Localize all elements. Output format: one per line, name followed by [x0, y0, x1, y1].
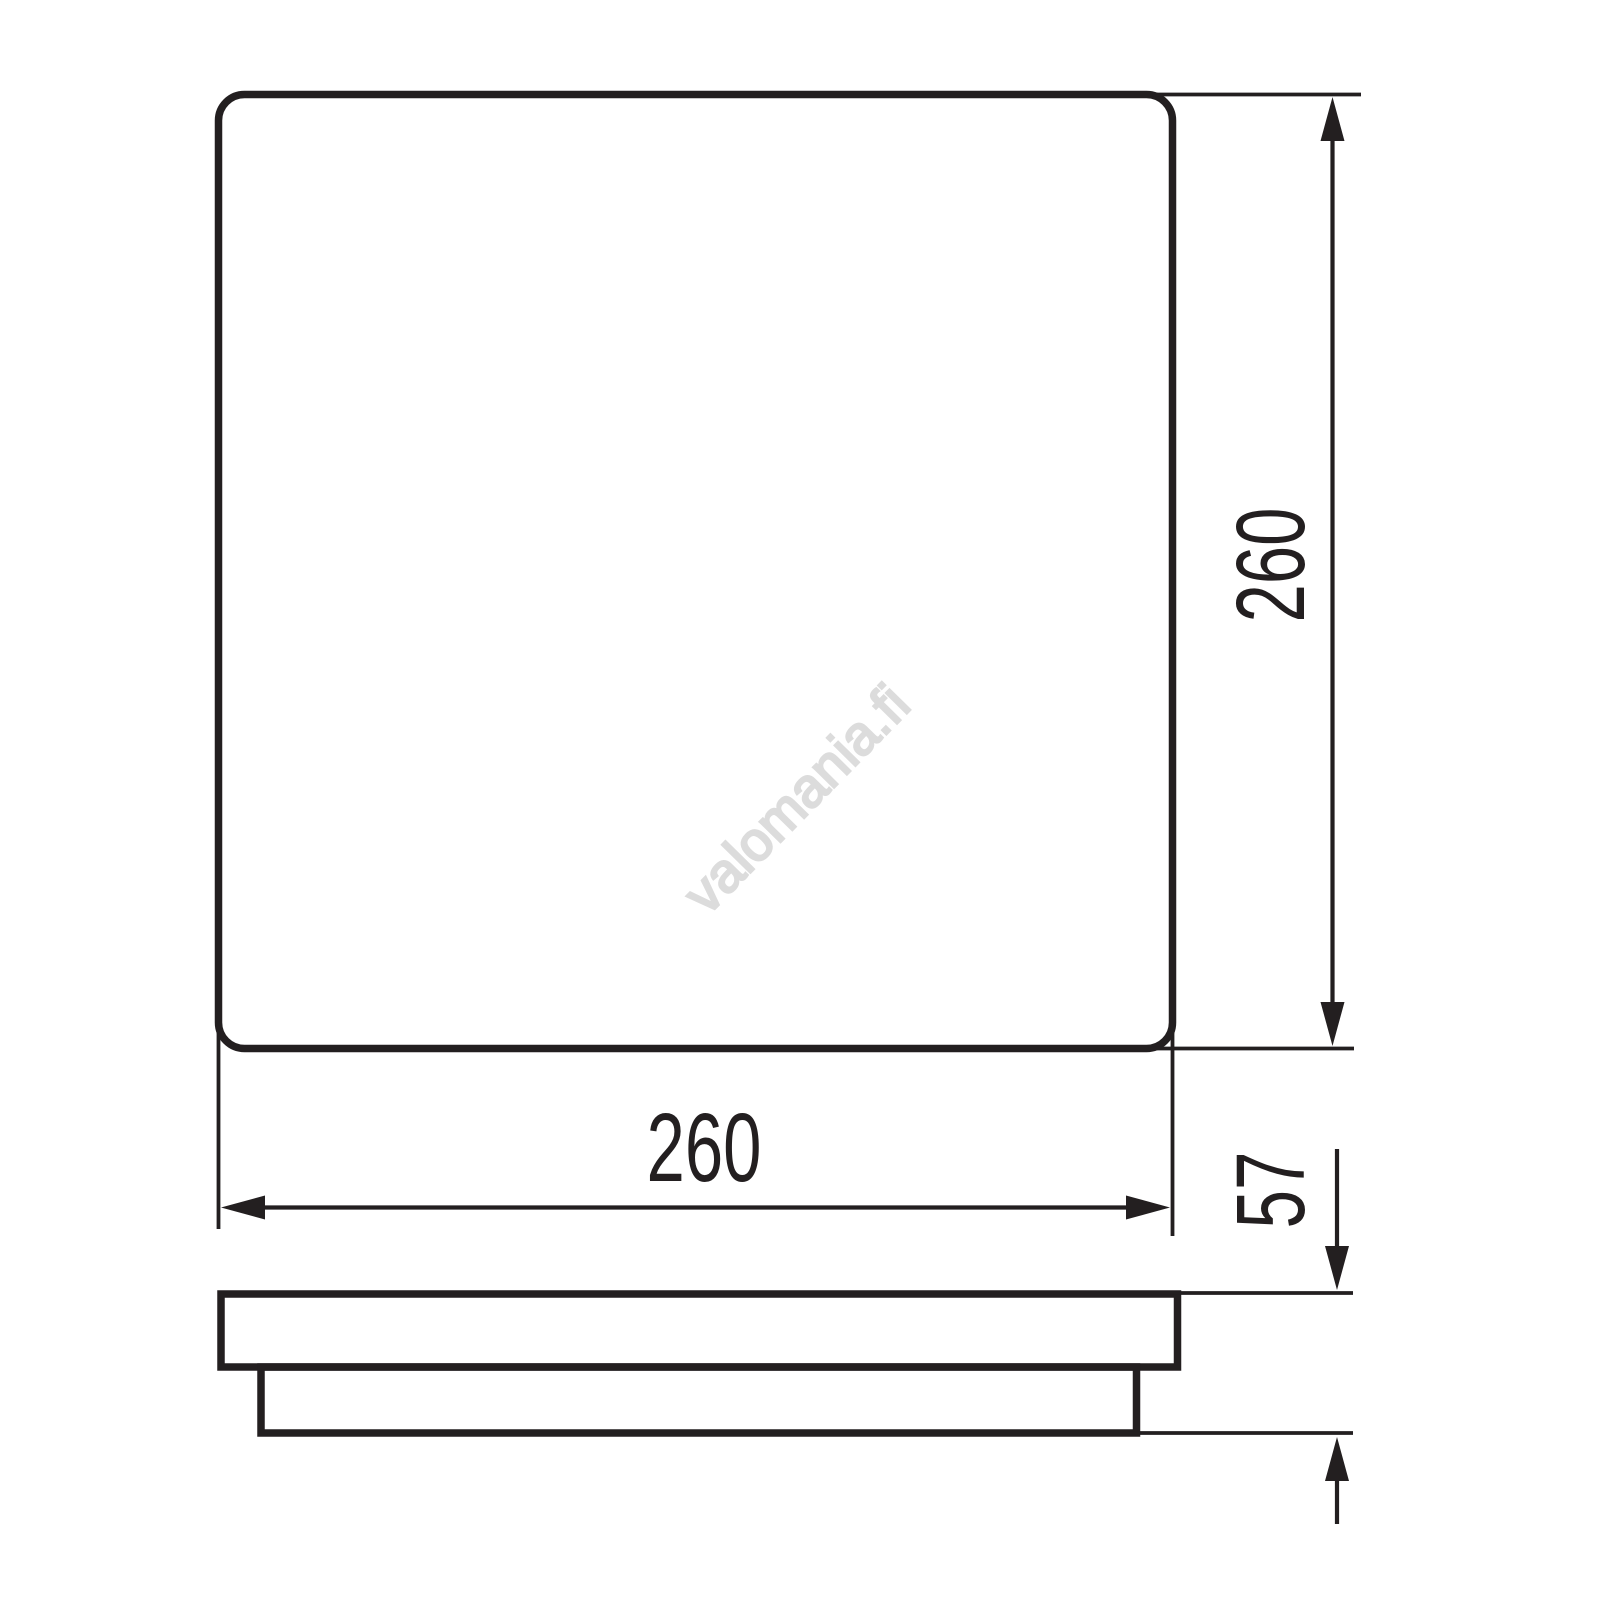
svg-text:260: 260 [1216, 508, 1325, 623]
svg-text:57: 57 [1216, 1152, 1325, 1229]
svg-text:260: 260 [647, 1093, 762, 1202]
